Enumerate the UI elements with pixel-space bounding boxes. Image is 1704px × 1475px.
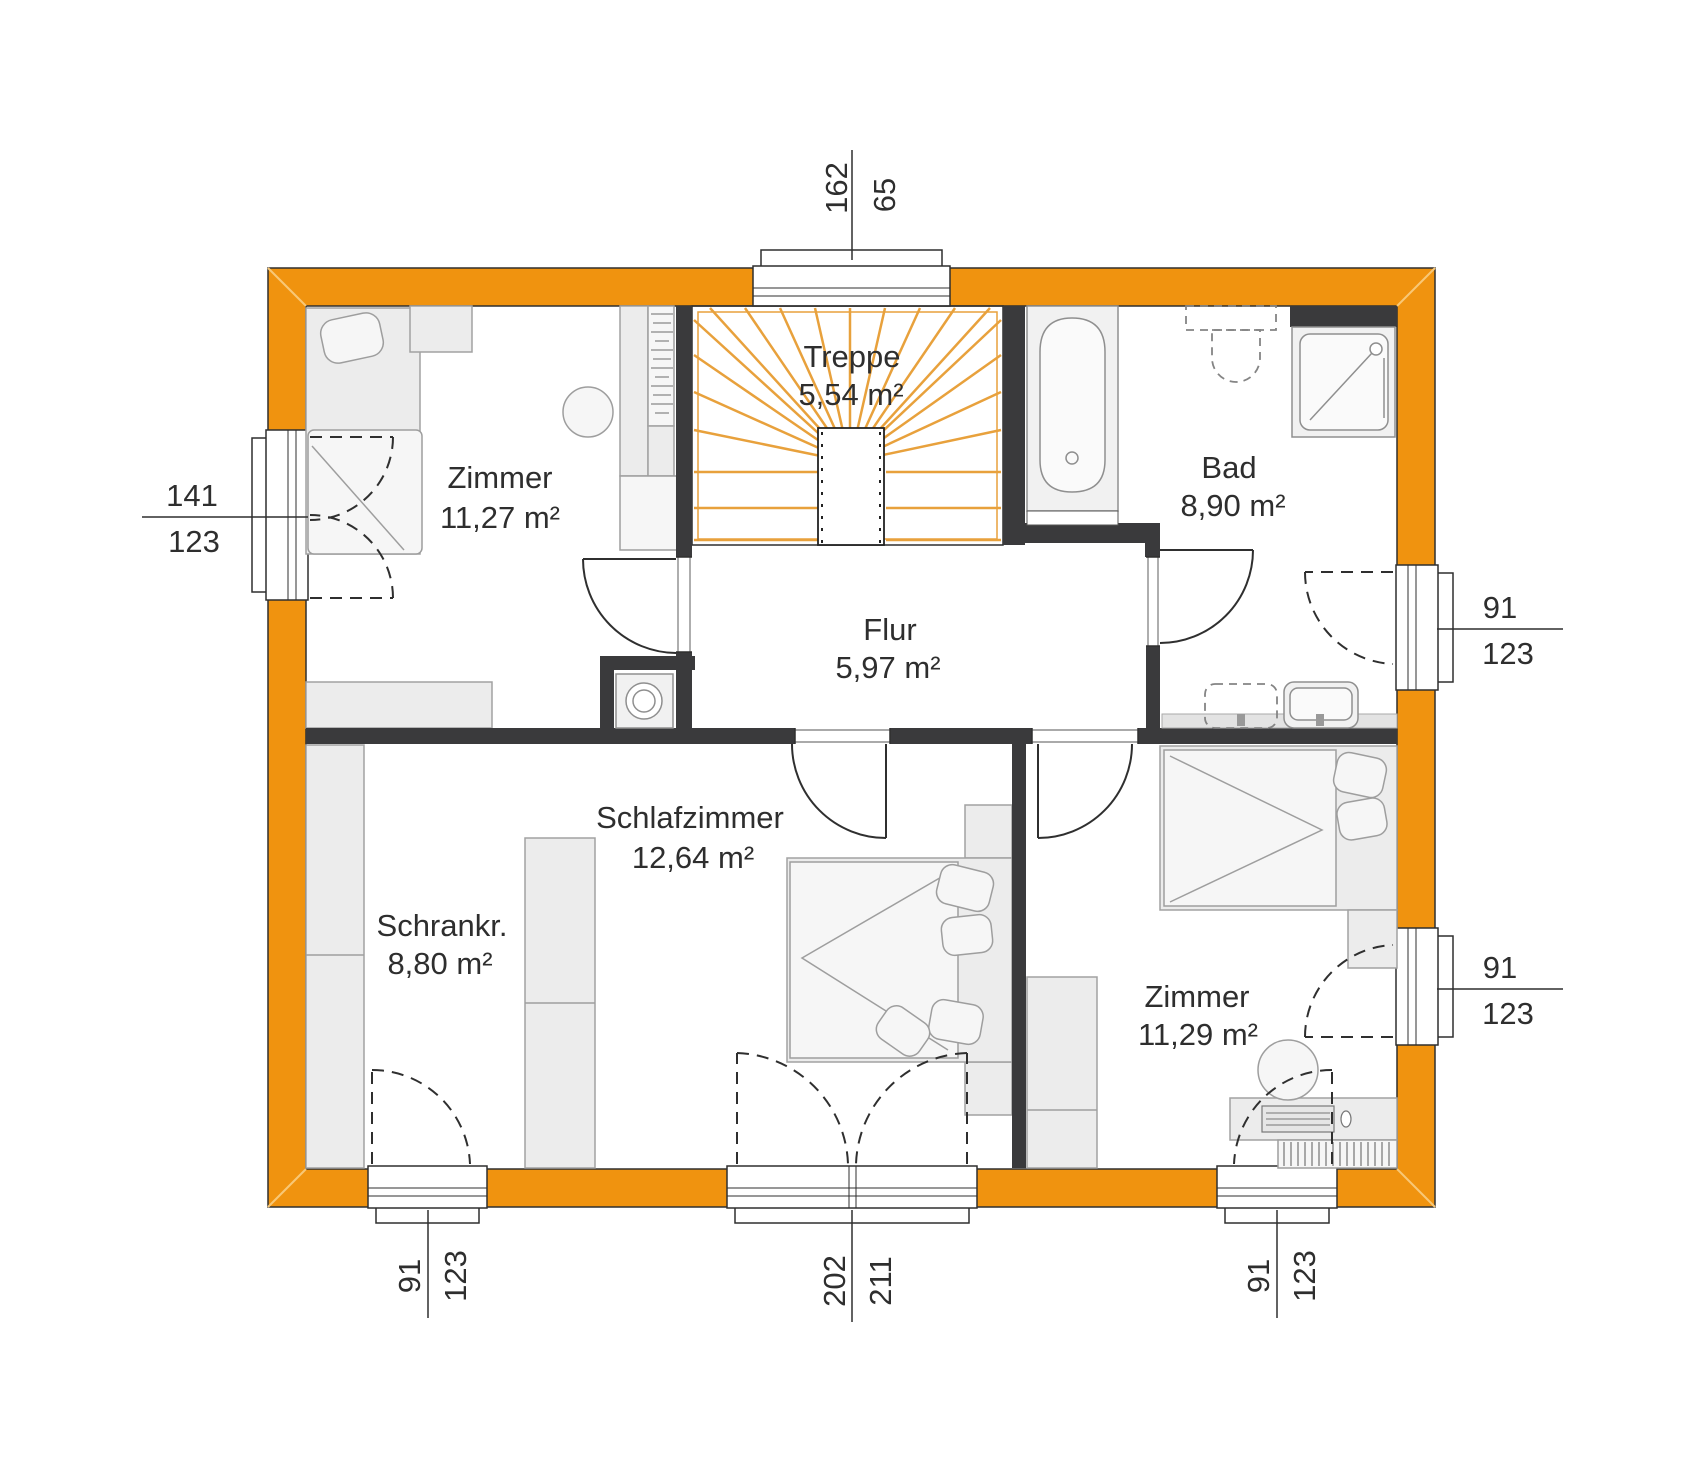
shower-head-icon bbox=[1370, 343, 1382, 355]
label-zimmer-tl-area: 11,27 m² bbox=[440, 500, 560, 535]
closet-left bbox=[306, 745, 364, 1168]
pillow bbox=[1335, 796, 1389, 842]
pillow bbox=[940, 913, 994, 956]
dim-right-bad-b: 123 bbox=[1482, 636, 1534, 671]
dim-left-b: 123 bbox=[168, 524, 220, 559]
dimension-right-zimmer: 91 123 bbox=[1437, 950, 1563, 1031]
label-schrankraum-area: 8,80 m² bbox=[387, 946, 492, 981]
dim-right-zimmer-b: 123 bbox=[1482, 996, 1534, 1031]
floor-plan-page: Treppe 5,54 m² Zimmer 11,27 m² Bad 8,90 … bbox=[0, 0, 1704, 1475]
dim-bottom-middle-a: 202 bbox=[817, 1255, 852, 1307]
nightstand bbox=[965, 805, 1012, 858]
label-schlafzimmer: Schlafzimmer bbox=[596, 800, 784, 835]
dim-right-bad-a: 91 bbox=[1483, 590, 1517, 625]
desk bbox=[620, 476, 677, 550]
window-right-bad bbox=[1396, 565, 1453, 690]
washing-machine-niche bbox=[616, 674, 673, 728]
dimension-bottom-middle: 202 211 bbox=[817, 1210, 898, 1322]
dimension-top: 162 65 bbox=[819, 150, 902, 260]
window-left bbox=[252, 430, 308, 600]
duvet bbox=[1164, 750, 1336, 906]
label-zimmer-br-area: 11,29 m² bbox=[1138, 1017, 1258, 1052]
shower bbox=[1292, 327, 1395, 437]
chair bbox=[1258, 1040, 1318, 1100]
dim-bottom-right-a: 91 bbox=[1241, 1259, 1276, 1293]
label-schrankraum: Schrankr. bbox=[377, 908, 508, 943]
label-bad-area: 8,90 m² bbox=[1180, 488, 1285, 523]
sideboard bbox=[306, 682, 492, 728]
window-right-zimmer bbox=[1396, 928, 1453, 1045]
label-zimmer-br: Zimmer bbox=[1144, 979, 1249, 1014]
nightstand bbox=[1348, 910, 1397, 968]
dim-top-b: 65 bbox=[867, 178, 902, 212]
dimension-bottom-right: 91 123 bbox=[1241, 1210, 1322, 1318]
bookshelf bbox=[1278, 1140, 1397, 1168]
pillow bbox=[927, 998, 985, 1046]
dim-top-a: 162 bbox=[819, 162, 854, 214]
bathtub bbox=[1027, 306, 1118, 525]
label-treppe-area: 5,54 m² bbox=[798, 377, 903, 412]
label-flur-area: 5,97 m² bbox=[835, 650, 940, 685]
chair bbox=[563, 387, 613, 437]
clothes-rail bbox=[648, 306, 674, 426]
dim-left-a: 141 bbox=[166, 478, 218, 513]
dimension-right-bad: 91 123 bbox=[1437, 590, 1563, 671]
dim-right-zimmer-a: 91 bbox=[1483, 950, 1517, 985]
stairwell-core bbox=[818, 428, 884, 545]
label-schlafzimmer-area: 12,64 m² bbox=[632, 840, 754, 875]
label-zimmer-tl: Zimmer bbox=[447, 460, 552, 495]
label-bad: Bad bbox=[1201, 450, 1256, 485]
dim-bottom-middle-b: 211 bbox=[863, 1256, 898, 1305]
dimension-bottom-left: 91 123 bbox=[392, 1210, 473, 1318]
label-flur: Flur bbox=[863, 612, 916, 647]
label-treppe: Treppe bbox=[803, 339, 900, 374]
wardrobe bbox=[620, 306, 648, 476]
wardrobe bbox=[1027, 977, 1097, 1168]
mouse bbox=[1341, 1111, 1351, 1127]
dim-bottom-right-b: 123 bbox=[1287, 1250, 1322, 1302]
dresser bbox=[410, 306, 472, 352]
nightstand bbox=[965, 1062, 1012, 1115]
dim-bottom-left-a: 91 bbox=[392, 1259, 427, 1293]
floor-plan: Treppe 5,54 m² Zimmer 11,27 m² Bad 8,90 … bbox=[0, 0, 1704, 1475]
dim-bottom-left-b: 123 bbox=[438, 1250, 473, 1302]
niche-wall bbox=[600, 656, 695, 670]
